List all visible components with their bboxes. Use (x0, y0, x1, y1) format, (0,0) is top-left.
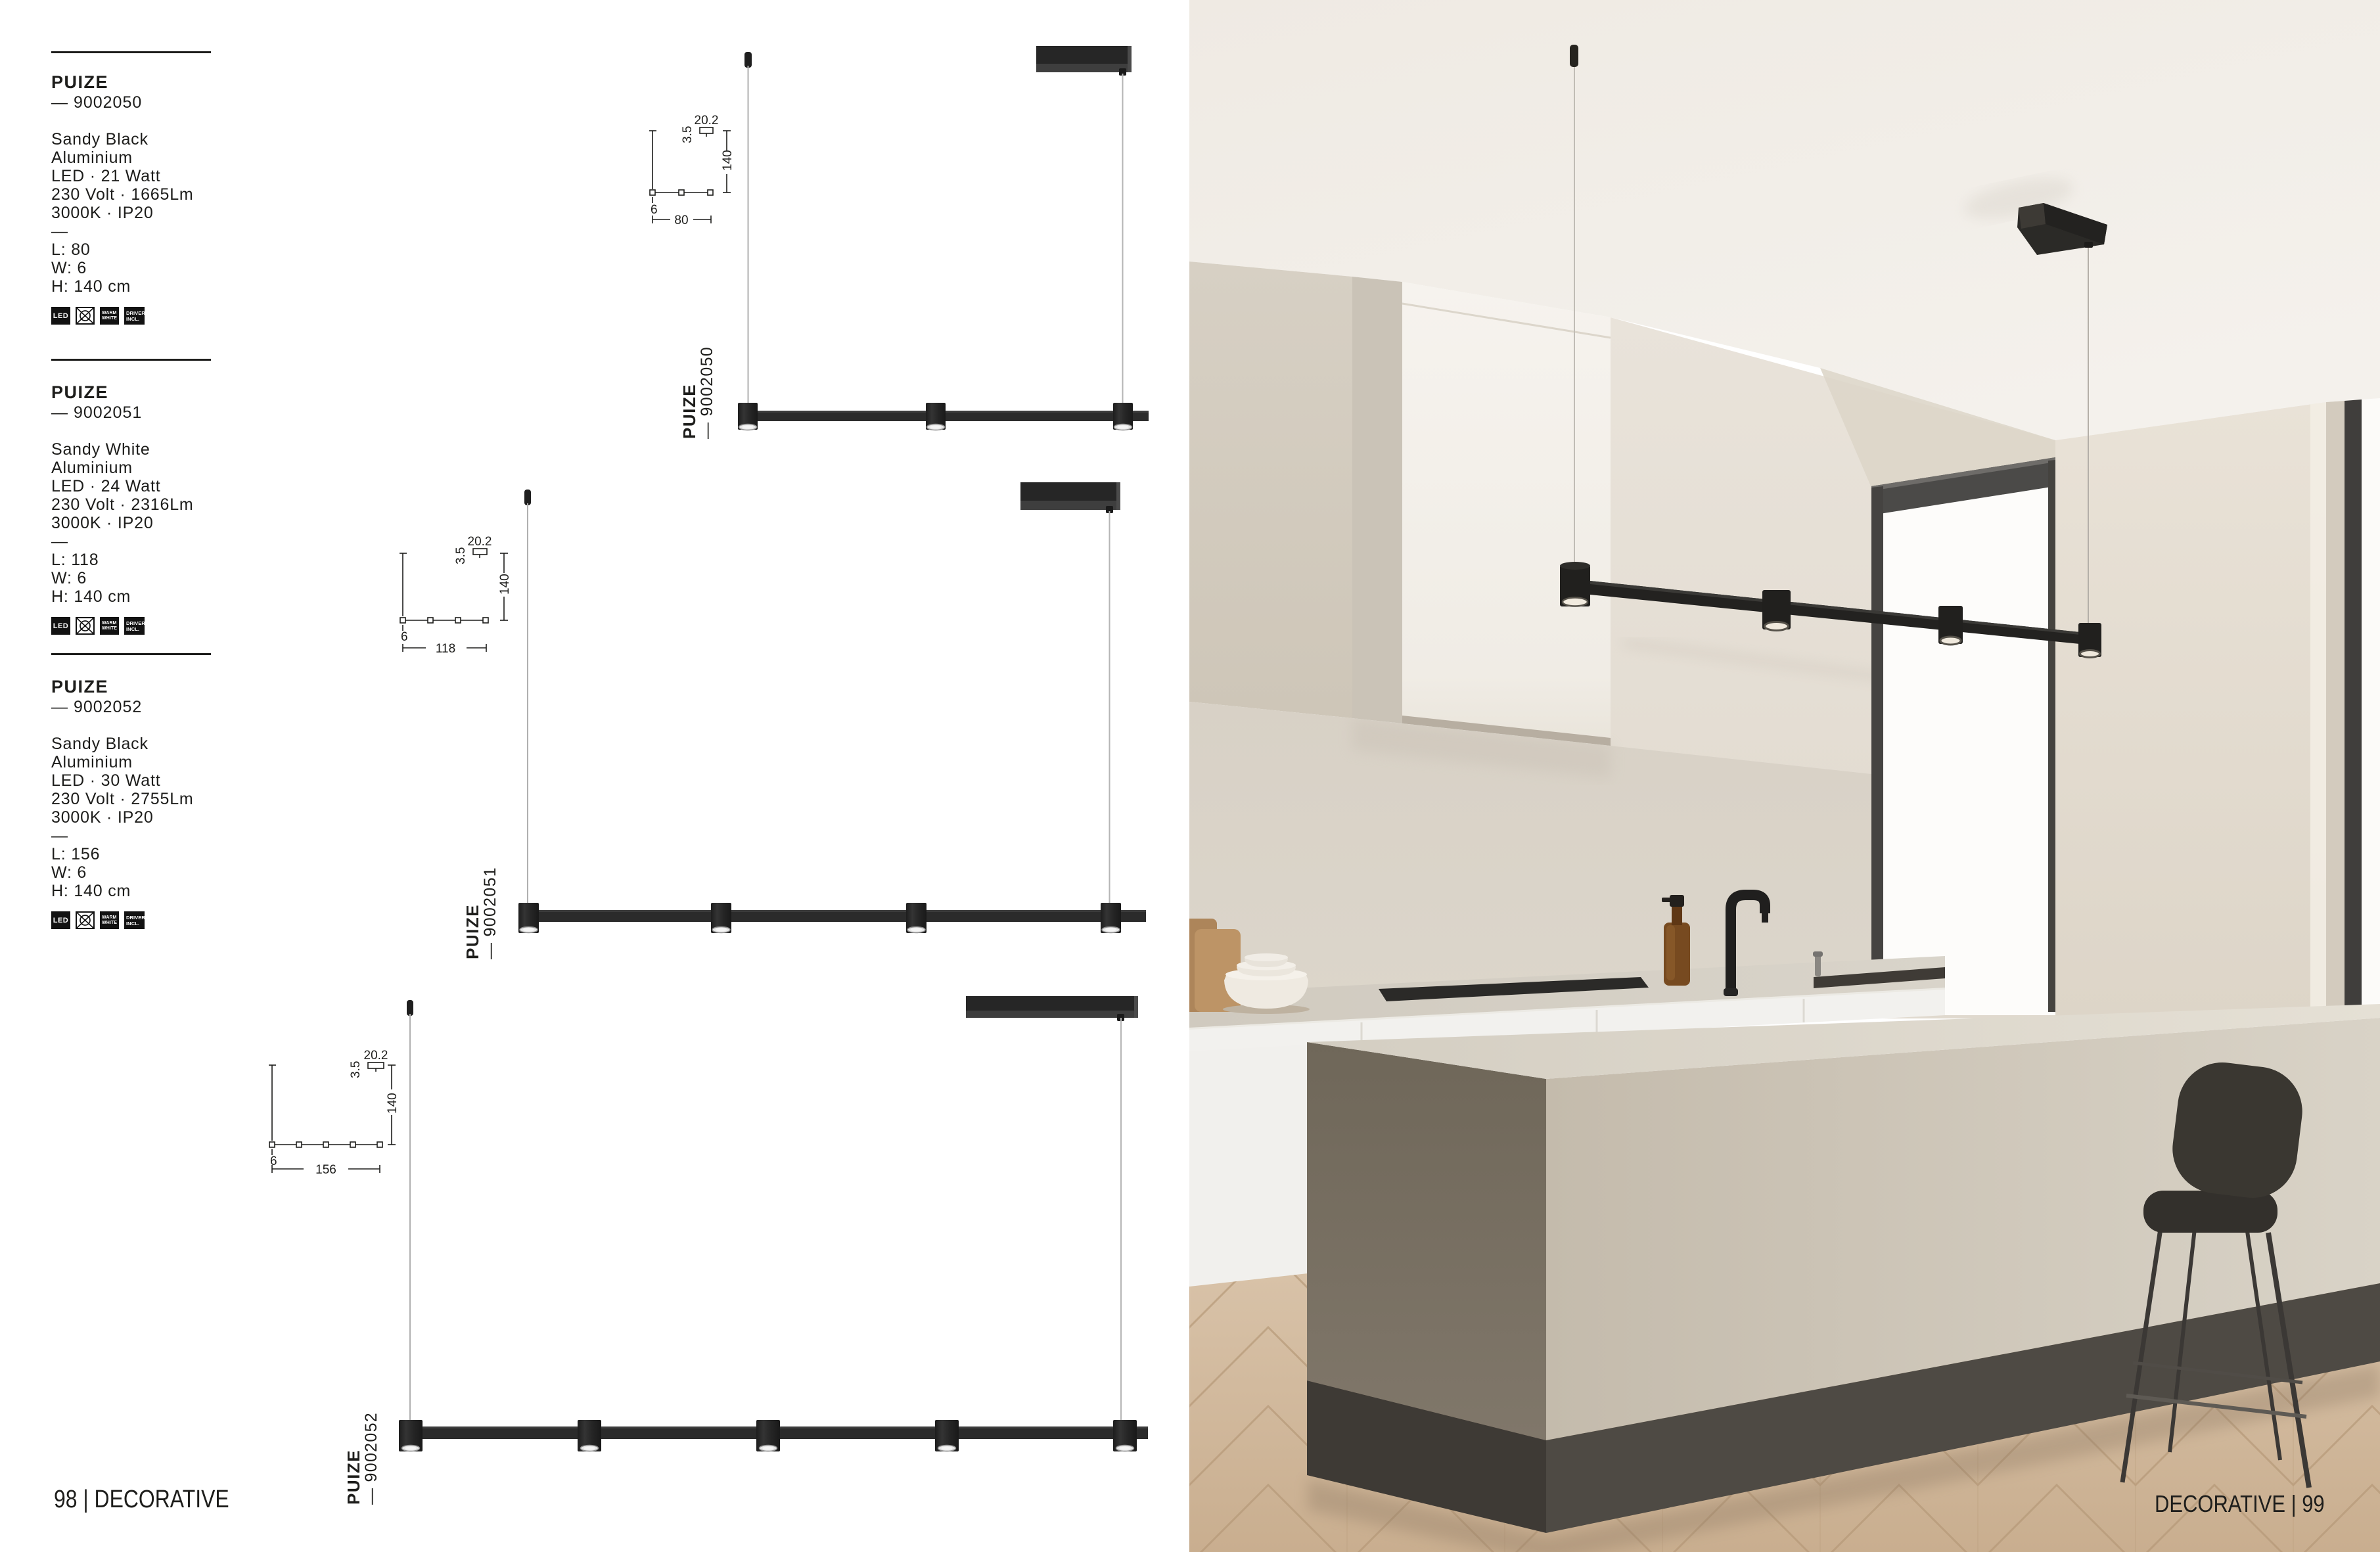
svg-text:6: 6 (270, 1154, 277, 1168)
svg-text:118: 118 (436, 642, 455, 656)
svg-text:140: 140 (721, 150, 735, 171)
svg-text:140: 140 (386, 1093, 400, 1114)
svg-text:3.5: 3.5 (349, 1061, 363, 1078)
svg-text:20.2: 20.2 (695, 114, 719, 127)
svg-text:3.5: 3.5 (681, 126, 695, 143)
svg-text:6: 6 (651, 203, 658, 217)
svg-text:6: 6 (401, 630, 408, 644)
svg-text:20.2: 20.2 (468, 535, 492, 549)
svg-text:20.2: 20.2 (364, 1049, 388, 1062)
svg-text:140: 140 (498, 574, 512, 595)
svg-text:80: 80 (674, 214, 688, 227)
svg-text:156: 156 (315, 1163, 336, 1177)
svg-text:3.5: 3.5 (454, 547, 468, 564)
